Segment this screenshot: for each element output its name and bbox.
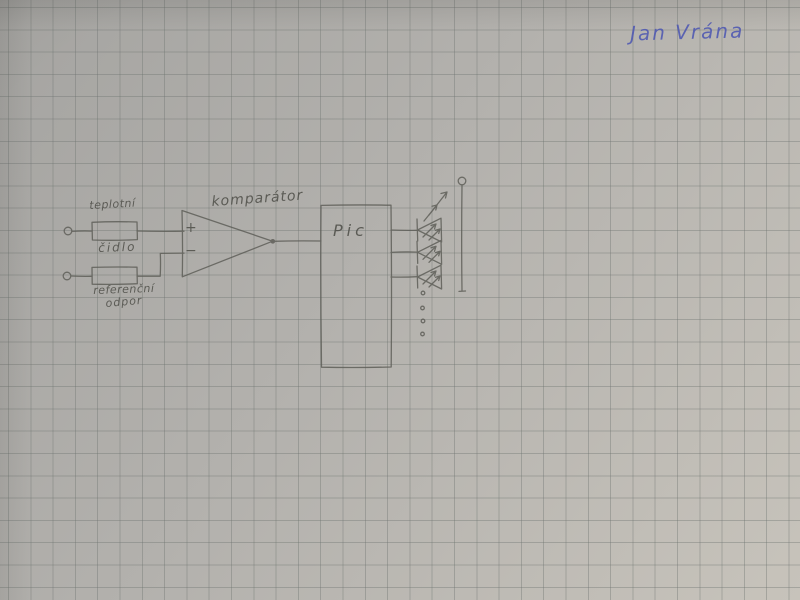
comparator-plus-input-label: +: [185, 220, 197, 236]
pic-led-wires: [391, 230, 417, 277]
led-3-icon: [417, 265, 442, 289]
sensor-label-line1: teplotní: [89, 197, 136, 212]
author-signature: Jan Vrána: [630, 19, 745, 46]
temperature-sensor-resistor: [72, 222, 184, 241]
supply-rail: [458, 177, 466, 291]
more-leds-ellipsis-icon: [421, 291, 425, 336]
input-terminal-top-icon: [64, 227, 72, 235]
supply-terminal-icon: [458, 177, 466, 185]
comparator-minus-input-label: −: [185, 243, 197, 259]
led-2-icon: [417, 241, 442, 265]
light-emission-arrows-icon: [424, 192, 447, 221]
input-terminal-bottom-icon: [63, 272, 71, 280]
mcu-label: Pic: [333, 221, 368, 240]
led-1-icon: [417, 218, 442, 242]
reference-resistor: [71, 253, 184, 284]
graph-paper-page: teplotní čidlo referenční odpor komparát…: [0, 0, 800, 600]
sensor-label-line2: čidlo: [98, 240, 137, 255]
